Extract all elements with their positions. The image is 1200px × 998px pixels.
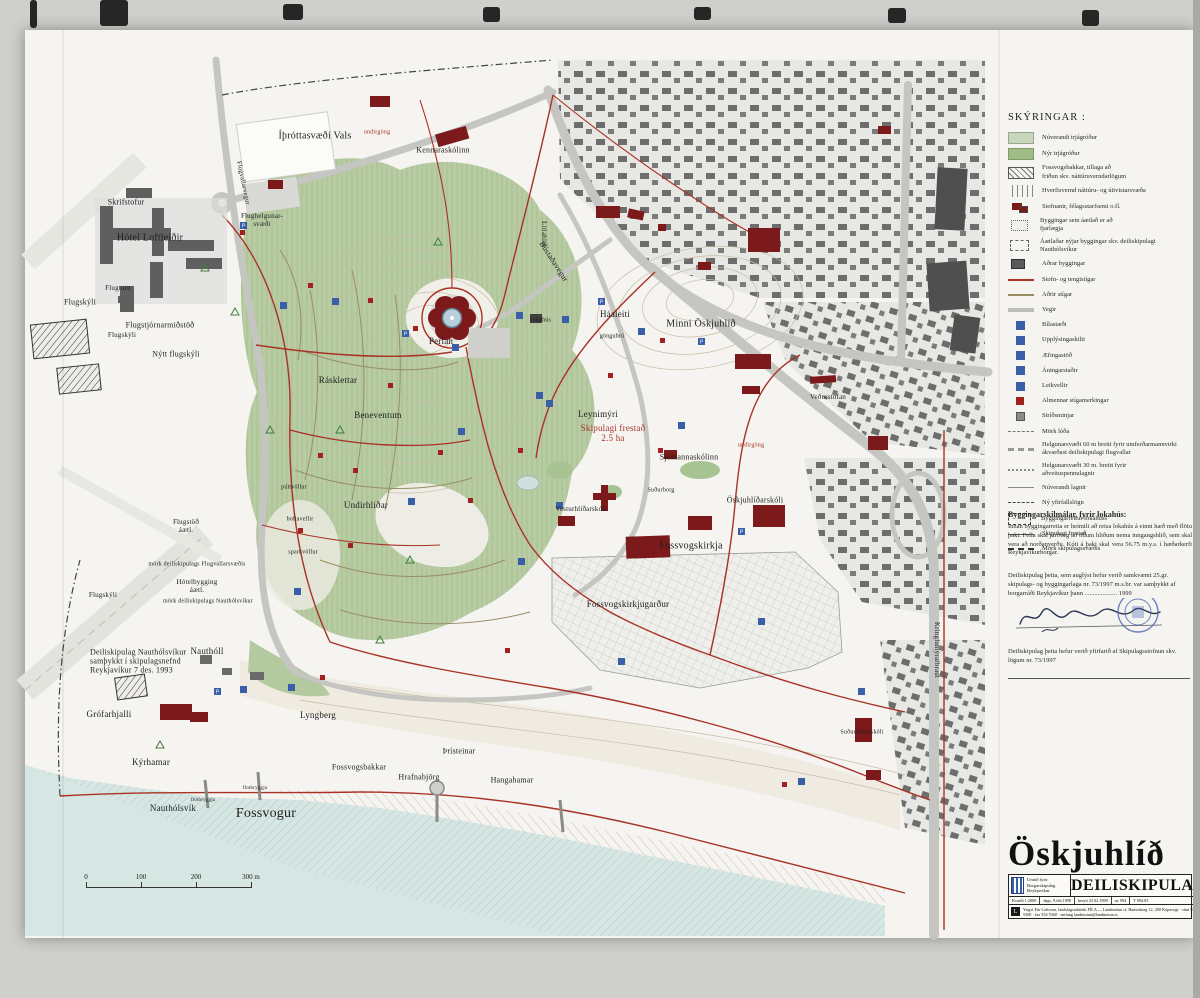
legend-list: Núverandi trjágróðurNýr trjágróðurFossvo…	[1008, 132, 1192, 555]
blue-sq-swatch-icon	[1016, 321, 1025, 330]
legend-label: Helgunarsvæði 30 m. breitt fyrir aðveitu…	[1042, 462, 1126, 478]
legend-item: Æfingastöð	[1008, 350, 1192, 361]
legend-label: Fossvogsbakkar, tillaga að friðun skv. n…	[1042, 164, 1126, 180]
legend-label: Áætlaðar nýjar byggingar skv. deiliskipu…	[1040, 238, 1156, 254]
reykjavik-crest-icon	[1011, 877, 1024, 894]
legend-item: Leikvellir	[1008, 381, 1192, 392]
scale-text: Kvarði 1:2000	[1009, 897, 1040, 904]
legend-label: Ný yfirfallslögn	[1042, 499, 1084, 507]
other-bld-swatch-icon	[1008, 258, 1034, 270]
building-terms-title: Byggingarskilmálar, fyrir lokahús:	[1008, 510, 1192, 519]
punch-hole-icon	[483, 7, 500, 22]
scale-tick-label: 0	[84, 873, 88, 881]
legend-label: Upplýsingaskilti	[1042, 336, 1085, 344]
number-text: nr. 994	[1112, 897, 1131, 904]
title-block-client-cell: Unnið fyrir Borgarskipulag Reykjavíkur	[1009, 875, 1071, 896]
blue-sq-swatch-icon	[1016, 366, 1025, 375]
hatch-diag-swatch-icon	[1008, 167, 1034, 179]
legend-label: Áningarstaðir	[1042, 367, 1078, 375]
legend-label: Nýr trjágróður	[1042, 150, 1080, 158]
veg-existing-swatch-icon	[1008, 132, 1034, 144]
scale-tick: 300 m	[251, 882, 252, 888]
legend-item: Ný yfirfallslögn	[1008, 497, 1192, 508]
yfirfall-swatch-icon	[1008, 502, 1034, 503]
title-block-meta-row: Kvarði 1:2000 dags. 9.feb.1998 breytt 23…	[1009, 896, 1200, 904]
legend-item: Stofnanir, félagsstarfsemi o.fl.	[1008, 201, 1192, 213]
legend-item: Stríðsminjar	[1008, 411, 1192, 422]
veg-new-swatch-icon	[1008, 148, 1034, 160]
panel-divider	[1008, 678, 1190, 679]
legend-item: Aðrar byggingar	[1008, 258, 1192, 270]
paper-crease	[998, 30, 1000, 938]
punch-hole-icon	[100, 0, 128, 26]
helg60-swatch-icon	[1008, 448, 1034, 451]
punch-hole-icon	[283, 4, 303, 20]
revised-text: breytt 23.02.1999	[1075, 897, 1112, 904]
dashdot-thin-swatch-icon	[1008, 431, 1034, 432]
legend-label: Aðrar byggingar	[1042, 260, 1085, 268]
client-text: Unnið fyrir Borgarskipulag Reykjavíkur	[1027, 877, 1055, 894]
date-text: dags. 9.feb.1998	[1040, 897, 1075, 904]
legend-item: Stofn- og tengistígar	[1008, 274, 1192, 285]
legend-label: Mörk lóða	[1042, 428, 1069, 436]
paper-crease	[62, 30, 64, 938]
legend-item: Núverandi trjágróður	[1008, 132, 1192, 144]
binder-edge-mark	[30, 0, 37, 28]
firm-text: Yngvi Þór Loftsson, landslagsarkitekt FÍ…	[1023, 907, 1200, 917]
legend-item: Hverfisvernd náttúru- og útivistarsvæða	[1008, 185, 1192, 197]
scale-tick: 0	[86, 882, 87, 888]
punch-hole-icon	[694, 7, 711, 20]
inst-swatch-icon	[1008, 201, 1034, 213]
legend-item: Byggingar sem áætlað er að fjarlægja	[1008, 217, 1192, 233]
red-line-swatch-icon	[1008, 279, 1034, 281]
legend-item: Núverandi lagnir	[1008, 482, 1192, 493]
cemetery	[552, 552, 842, 688]
scale-tick-label: 200	[191, 873, 202, 881]
hatch-vert-swatch-icon	[1008, 185, 1034, 197]
approval-note: Deiliskipulag þetta, sem auglýst hefur v…	[1008, 572, 1192, 598]
helg30-swatch-icon	[1008, 469, 1034, 471]
legend-label: Stofn- og tengistígar	[1042, 276, 1095, 284]
legend-item: Mörk lóða	[1008, 426, 1192, 437]
punch-hole-icon	[888, 8, 906, 23]
legend-panel: SKÝRINGAR : Núverandi trjágróðurNýr trjá…	[1008, 112, 1192, 559]
legend-label: Almennar stígamerkingar	[1042, 397, 1109, 405]
title-block: Öskjuhlíð Unnið fyrir Borgarskipulag Rey…	[1008, 836, 1192, 919]
legend-item: Aðrir stígar	[1008, 289, 1192, 300]
legend-label: Hverfisvernd náttúru- og útivistarsvæða	[1042, 187, 1146, 195]
legend-item: Nýr trjágróður	[1008, 148, 1192, 160]
review-note: Deiliskipulag þetta hefur verið yfirfari…	[1008, 648, 1192, 666]
brown-line-swatch-icon	[1008, 294, 1034, 296]
legend-label: Helgunarsvæði 60 m breitt fyrir umferðar…	[1042, 441, 1177, 457]
drawing-number-text: T 994.03	[1130, 897, 1151, 904]
legend-item: Fossvogsbakkar, tillaga að friðun skv. n…	[1008, 164, 1192, 180]
legend-title: SKÝRINGAR :	[1008, 112, 1192, 123]
legend-label: Æfingastöð	[1042, 352, 1072, 360]
building-terms-body: Innan byggingarreita er heimilt að reisa…	[1008, 523, 1192, 558]
legend-label: Aðrir stígar	[1042, 291, 1072, 299]
signature-area	[1012, 598, 1188, 642]
paper-edge-shadow	[1193, 0, 1200, 998]
legend-item: Helgunarsvæði 60 m breitt fyrir umferðar…	[1008, 441, 1192, 457]
blue-sq-swatch-icon	[1016, 382, 1025, 391]
gray-line-swatch-icon	[1008, 308, 1034, 312]
blue-sq-swatch-icon	[1016, 336, 1025, 345]
legend-label: Núverandi trjágróður	[1042, 134, 1097, 142]
remove-swatch-icon	[1011, 220, 1028, 231]
scale-bar: 0100200300 m	[86, 874, 262, 894]
red-sq-swatch-icon	[1016, 397, 1024, 405]
legend-item: Áningarstaðir	[1008, 365, 1192, 376]
scale-tick: 100	[141, 882, 142, 888]
legend-label: Stofnanir, félagsstarfsemi o.fl.	[1042, 203, 1121, 211]
gray-sq-swatch-icon	[1016, 412, 1025, 421]
legend-label: Vegir	[1042, 306, 1056, 314]
sheet-subtitle: DEILISKIPULAG	[1071, 877, 1200, 895]
title-block-table: Unnið fyrir Borgarskipulag Reykjavíkur D…	[1008, 874, 1192, 919]
title-block-firm-row: L Yngvi Þór Loftsson, landslagsarkitekt …	[1009, 904, 1200, 918]
scanned-plan-page: PPP PPP SkrifstofurHótel LoftleiðirFlugs…	[0, 0, 1200, 998]
legend-item: Áætlaðar nýjar byggingar skv. deiliskipu…	[1008, 238, 1192, 254]
sheet-title: Öskjuhlíð	[1008, 836, 1192, 871]
legend-item: Vegir	[1008, 305, 1192, 316]
lagnir-swatch-icon	[1008, 487, 1034, 488]
scale-tick-label: 100	[136, 873, 147, 881]
punch-hole-icon	[1082, 10, 1099, 26]
legend-label: Leikvellir	[1042, 382, 1068, 390]
landmotun-logo-icon: L	[1011, 907, 1020, 916]
building-terms-note: Byggingarskilmálar, fyrir lokahús: Innan…	[1008, 510, 1192, 564]
legend-item: Almennar stígamerkingar	[1008, 396, 1192, 407]
legend-label: Bílastæði	[1042, 321, 1067, 329]
legend-label: Byggingar sem áætlað er að fjarlægja	[1040, 217, 1113, 233]
scale-tick-label: 300 m	[242, 873, 260, 881]
scale-bar-line	[86, 887, 252, 888]
legend-item: Upplýsingaskilti	[1008, 335, 1192, 346]
legend-item: Helgunarsvæði 30 m. breitt fyrir aðveitu…	[1008, 462, 1192, 478]
legend-item: Bílastæði	[1008, 320, 1192, 331]
signature-icon	[1012, 598, 1188, 642]
legend-label: Stríðsminjar	[1042, 412, 1074, 420]
legend-label: Núverandi lagnir	[1042, 484, 1086, 492]
scale-tick: 200	[196, 882, 197, 888]
new-bld-swatch-icon	[1010, 240, 1029, 251]
blue-sq-swatch-icon	[1016, 351, 1025, 360]
stamp-icon	[1118, 598, 1158, 632]
